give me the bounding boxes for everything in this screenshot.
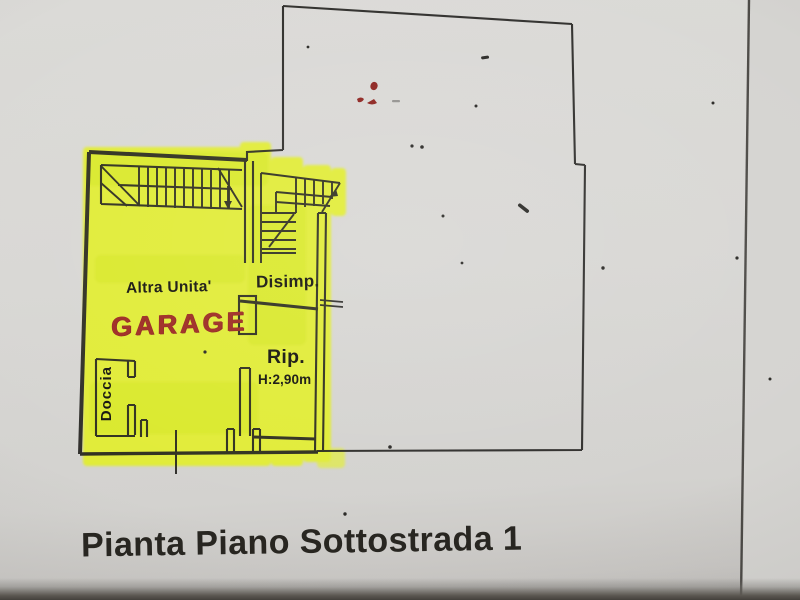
room-label-disimp: Disimp.: [256, 271, 320, 292]
unit-highlight: [83, 142, 346, 468]
handwritten-garage-annotation: GARAGE: [111, 306, 248, 343]
room-label-altra-unita: Altra Unita': [126, 278, 212, 298]
red-ink-marks: [357, 81, 379, 104]
room-label-rip: Rip.: [267, 346, 305, 369]
room-height-note: H:2,90m: [258, 372, 311, 387]
page-edge-region: [741, 0, 800, 600]
floorplan-drawing: [0, 0, 800, 600]
scanned-floorplan-photo: Altra Unita' GARAGE Disimp. Rip. H:2,90m…: [0, 0, 800, 600]
photo-bottom-shadow: [0, 578, 800, 600]
room-label-doccia: Doccia: [98, 366, 115, 421]
plan-caption: Pianta Piano Sottostrada 1: [81, 520, 523, 566]
